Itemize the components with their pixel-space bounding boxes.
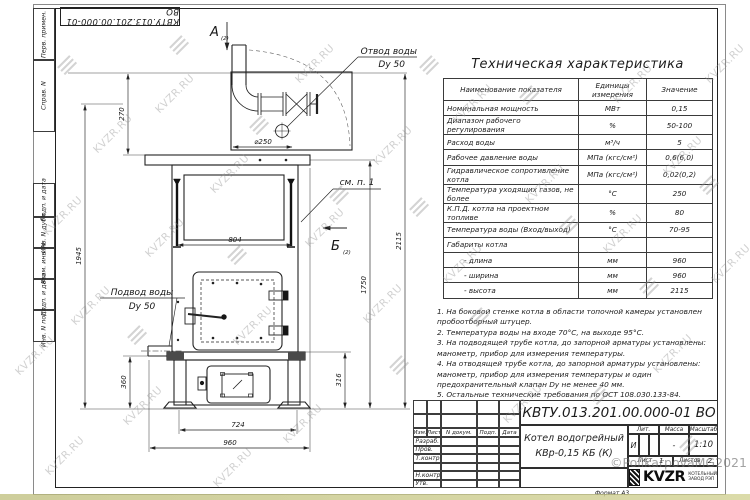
see-note-label: см. п. 1	[340, 178, 375, 188]
lit-cell-3	[649, 434, 659, 456]
kvzr-logo-subtext: КОТЕЛЬНЫЙ ЗАВОД РЭП	[688, 472, 717, 483]
row-prov: Пров.	[413, 446, 441, 455]
bottom-edge-band	[0, 494, 750, 500]
lit-header: Лит.	[628, 425, 659, 434]
dim-960: 960	[223, 439, 237, 447]
view-b-label: Б	[331, 239, 340, 254]
row-utv: Утв.	[413, 480, 441, 489]
title-block: Изм. Лист N докум. Подп. Дата Разраб. Пр…	[413, 400, 718, 488]
mass-value-cell: -	[659, 434, 689, 456]
col-data: Дата	[499, 428, 520, 437]
margin-cell-sprav-n: Справ. N	[33, 60, 55, 132]
technical-notes: 1. На боковой стенке котла в области топ…	[437, 307, 717, 401]
note-4: 4. На отводящей трубе котла, до запорной…	[437, 359, 717, 390]
table-header-row: Наименование показателя Единицы измерени…	[444, 79, 713, 101]
margin-label: Справ. N	[41, 82, 48, 111]
kvzr-logo-icon	[629, 469, 640, 486]
row-razrab: Разраб.	[413, 437, 441, 446]
table-row: К.П.Д. котла на проектном топливе%80	[444, 203, 713, 222]
table-row: Номинальная мощностьМВт0,15	[444, 101, 713, 116]
title-block-signoff-grid: Изм. Лист N докум. Подп. Дата Разраб. Пр…	[413, 400, 520, 488]
view-a-label: А	[209, 25, 219, 40]
extension-lines	[68, 73, 410, 452]
inlet-label-line2: Dy 50	[129, 302, 156, 312]
row-tkontr: Т.контр.	[413, 454, 441, 463]
lit-value-cell: И	[628, 434, 639, 456]
dim-1945: 1945	[75, 247, 83, 265]
row-blank	[413, 463, 441, 472]
table-row: Рабочее давление водыМПа (кгс/см²)0,6(6,…	[444, 150, 713, 165]
dim-724: 724	[231, 421, 244, 429]
col-header: Единицы измерения	[579, 79, 647, 101]
dim-1750: 1750	[360, 276, 368, 294]
titleblock-designation: КВТУ.013.201.00.000-01 ВО	[520, 400, 718, 425]
dim-804: 804	[228, 236, 241, 244]
dim-250: ⌀250	[254, 138, 272, 146]
col-podp: Подп.	[477, 428, 499, 437]
table-row: Температура воды (Вход/выход)°С70-95	[444, 222, 713, 237]
outlet-label-line2: Dy 50	[378, 60, 405, 70]
col-header: Наименование показателя	[444, 79, 579, 101]
tech-table: Наименование показателя Единицы измерени…	[443, 78, 713, 299]
table-row: - ширинамм960	[444, 268, 713, 283]
lit-cell-2	[639, 434, 649, 456]
dim-2115: 2115	[395, 232, 403, 250]
ash-door-base	[167, 352, 305, 397]
table-row: - длинамм960	[444, 252, 713, 267]
margin-label: Перв. примен.	[41, 10, 48, 57]
kvzr-logo-text: KVZR	[643, 469, 685, 485]
table-row: Гидравлическое сопротивление котлаМПа (к…	[444, 165, 713, 184]
margin-cell-perv-primen: Перв. примен.	[33, 8, 55, 60]
table-row: - высотамм2115	[444, 283, 713, 298]
table-row: Расход водым³/ч5	[444, 135, 713, 150]
dim-270: 270	[118, 107, 126, 121]
drawing-sheet: Перв. примен. Справ. N Подп. и дата Инв.…	[0, 0, 750, 500]
col-izm: Изм.	[413, 428, 427, 437]
margin-label: Инв. N подл.	[41, 305, 48, 347]
margin-cell-inv-podl: Инв. N подл.	[33, 310, 55, 342]
product-name-line2: КВр-0,15 КБ (К)	[535, 447, 612, 462]
col-dokum: N докум.	[441, 428, 477, 437]
note-2: 2. Температура воды на входе 70°С, на вы…	[437, 328, 717, 338]
copyright-watermark: ©PolikarpovaMG2021	[610, 455, 747, 470]
table-row: Температура уходящих газов, не более°С25…	[444, 184, 713, 203]
mass-header: Масса	[659, 425, 689, 434]
view-a-ref: (2)	[221, 36, 229, 42]
callout-labels: А (2) Б (2) Отвод воды Dy 50 Подвод воды…	[111, 25, 417, 312]
view-b-ref: (2)	[343, 250, 351, 256]
scale-value-cell: 1:10	[689, 434, 718, 456]
product-name-line1: Котел водогрейный	[524, 432, 624, 447]
table-row: Диапазон рабочего регулирования%50-100	[444, 116, 713, 135]
scale-header: Масштаб	[689, 425, 718, 434]
col-list: Лист	[427, 428, 441, 437]
dim-316: 316	[335, 373, 343, 387]
col-header: Значение	[647, 79, 713, 101]
dimension-lines	[85, 74, 405, 448]
outlet-label-line1: Отвод воды	[361, 47, 417, 57]
row-nkontr: Н.контр.	[413, 471, 441, 480]
dim-360: 360	[120, 375, 128, 389]
titleblock-empty-cell	[520, 468, 628, 488]
boiler-front-view: 270 1945 2115 1750 316 360 ⌀250 804 724 …	[55, 8, 430, 490]
note-3: 3. На подводящей трубе котла, до запорно…	[437, 338, 717, 359]
dimension-labels: 270 1945 2115 1750 316 360 ⌀250 804 724 …	[75, 107, 403, 447]
table-row: Габариты котла	[444, 237, 713, 252]
table-title: Техническая характеристика	[443, 57, 712, 72]
inlet-label-line1: Подвод воды	[111, 288, 174, 298]
note-1: 1. На боковой стенке котла в области топ…	[437, 307, 717, 328]
